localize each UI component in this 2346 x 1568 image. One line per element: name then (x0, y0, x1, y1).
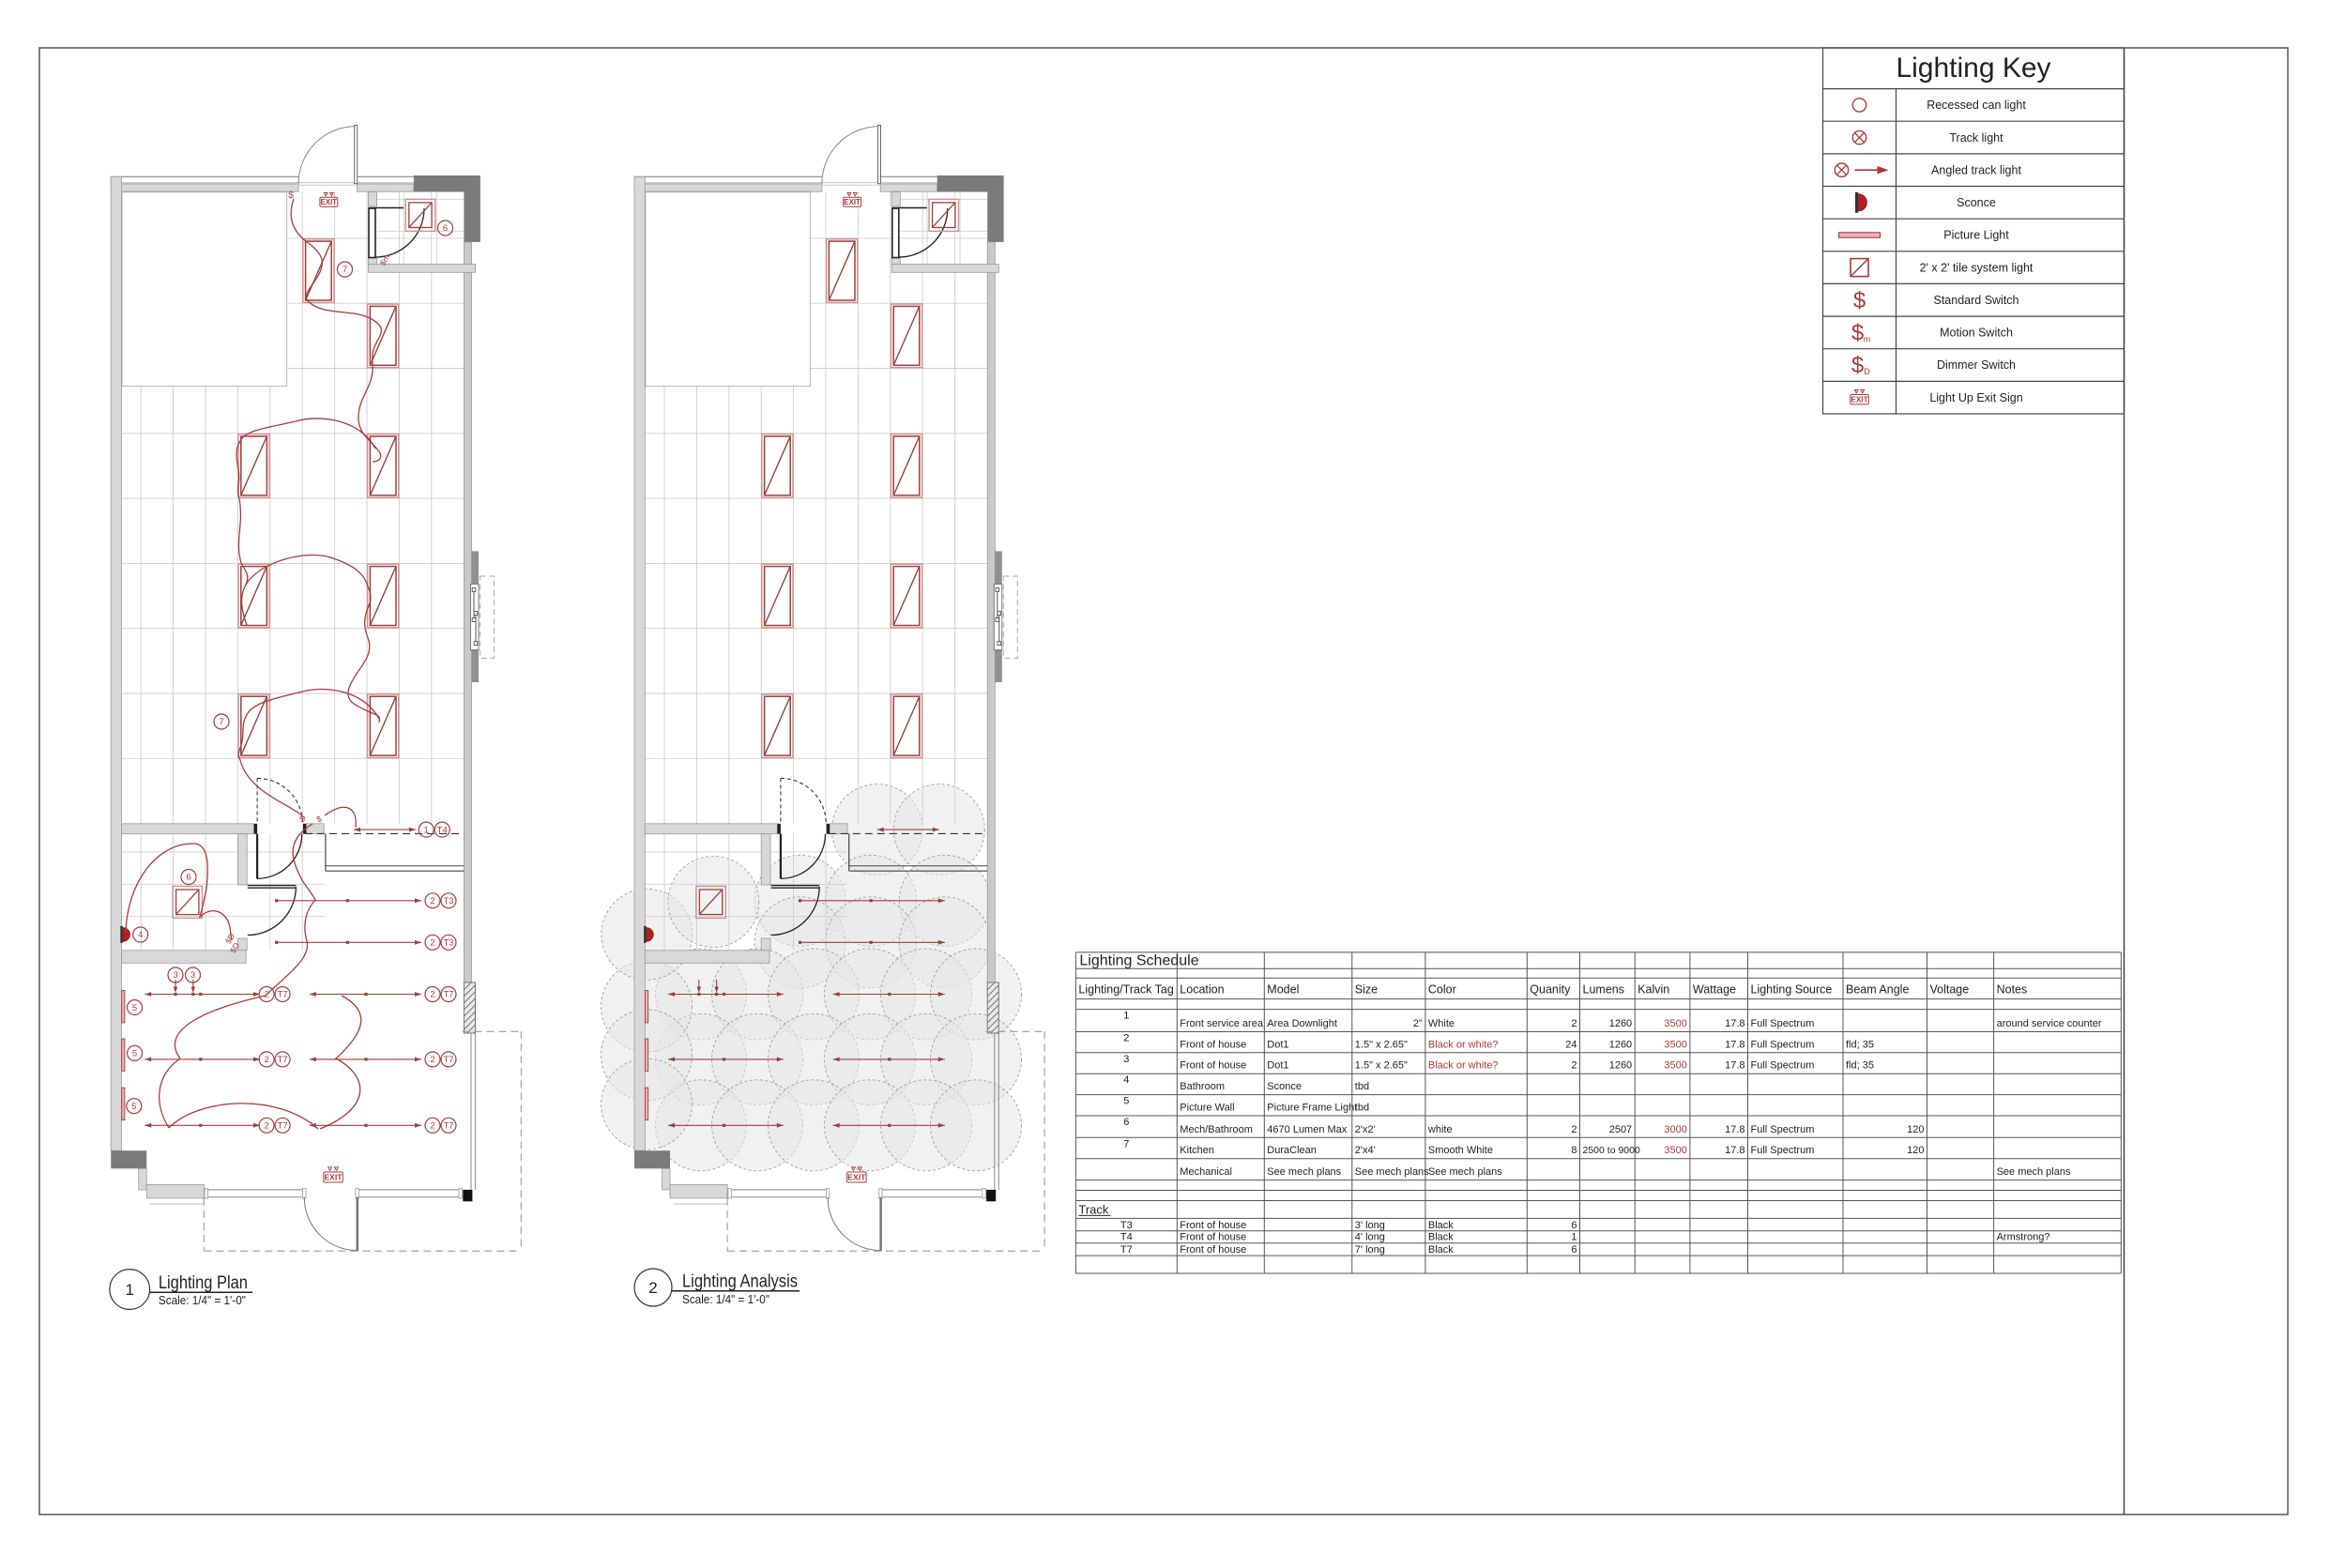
svg-text:m: m (1864, 334, 1871, 343)
svg-text:Size: Size (1355, 983, 1378, 997)
svg-text:T4: T4 (437, 825, 448, 835)
svg-text:3: 3 (173, 970, 177, 981)
svg-text:See mech plans: See mech plans (1267, 1166, 1341, 1178)
svg-text:7: 7 (343, 265, 347, 275)
svg-text:See mech plans: See mech plans (1355, 1166, 1429, 1178)
svg-text:Front of house: Front of house (1180, 1244, 1246, 1256)
svg-text:2: 2 (648, 1279, 657, 1297)
svg-text:1: 1 (1123, 1011, 1129, 1022)
svg-text:Beam Angle: Beam Angle (1846, 983, 1909, 997)
svg-text:Lumens: Lumens (1583, 983, 1624, 997)
svg-text:6: 6 (443, 223, 448, 234)
svg-text:Black or white?: Black or white? (1428, 1039, 1499, 1050)
svg-text:1.5" x 2.65": 1.5" x 2.65" (1355, 1039, 1408, 1050)
svg-text:120: 120 (1907, 1145, 1924, 1156)
svg-text:$: $ (1851, 320, 1864, 345)
svg-text:See mech plans: See mech plans (1428, 1166, 1502, 1178)
svg-text:white: white (1427, 1124, 1453, 1135)
svg-text:2: 2 (430, 938, 434, 949)
svg-text:2: 2 (430, 1055, 434, 1065)
svg-text:6: 6 (186, 873, 190, 883)
svg-text:Standard Switch: Standard Switch (1933, 294, 2018, 307)
svg-text:EXIT: EXIT (844, 198, 861, 206)
svg-text:1.5" x 2.65": 1.5" x 2.65" (1355, 1060, 1408, 1072)
svg-text:5: 5 (132, 1003, 137, 1013)
svg-text:Mech/Bathroom: Mech/Bathroom (1180, 1124, 1253, 1135)
svg-text:2: 2 (1571, 1060, 1577, 1072)
svg-text:tbd: tbd (1355, 1103, 1369, 1114)
svg-text:120: 120 (1907, 1124, 1924, 1135)
svg-text:Location: Location (1180, 983, 1224, 997)
svg-text:$: $ (288, 190, 294, 201)
svg-text:Smooth White: Smooth White (1428, 1145, 1493, 1156)
svg-text:Sconce: Sconce (1267, 1081, 1302, 1092)
svg-text:4' long: 4' long (1355, 1232, 1385, 1243)
svg-text:Quanity: Quanity (1530, 983, 1571, 997)
svg-text:T3: T3 (443, 896, 453, 906)
svg-text:Front of house: Front of house (1180, 1220, 1246, 1231)
svg-text:5: 5 (132, 1049, 137, 1059)
svg-text:3' long: 3' long (1355, 1220, 1385, 1231)
svg-text:fld; 35: fld; 35 (1846, 1039, 1874, 1050)
svg-text:fld; 35: fld; 35 (1846, 1060, 1874, 1072)
svg-text:Kalvin: Kalvin (1638, 983, 1669, 997)
svg-text:1: 1 (424, 825, 429, 835)
svg-text:3: 3 (190, 970, 195, 981)
svg-text:Full Spectrum: Full Spectrum (1751, 1060, 1815, 1072)
svg-text:Black or white?: Black or white? (1428, 1060, 1499, 1072)
svg-text:Track light: Track light (1949, 131, 2003, 145)
svg-text:2: 2 (430, 1121, 434, 1132)
svg-text:7' long: 7' long (1355, 1244, 1385, 1256)
svg-text:T7: T7 (278, 990, 288, 1000)
svg-text:T4: T4 (1120, 1232, 1133, 1243)
svg-text:2: 2 (1571, 1018, 1577, 1029)
svg-text:17.8: 17.8 (1725, 1018, 1744, 1029)
svg-text:T7: T7 (443, 990, 453, 1000)
svg-text:7: 7 (219, 717, 223, 727)
svg-text:Bathroom: Bathroom (1180, 1081, 1225, 1092)
svg-text:Angled track light: Angled track light (1931, 163, 2021, 176)
svg-text:around service counter: around service counter (1997, 1018, 2102, 1029)
svg-text:Lighting Schedule: Lighting Schedule (1079, 952, 1198, 968)
svg-text:17.8: 17.8 (1725, 1060, 1744, 1072)
svg-text:17.8: 17.8 (1725, 1124, 1744, 1135)
svg-text:Voltage: Voltage (1930, 983, 1970, 997)
svg-text:6: 6 (1571, 1244, 1577, 1256)
svg-text:7: 7 (1123, 1138, 1129, 1149)
svg-text:$: $ (1853, 288, 1866, 313)
svg-text:Dimmer Switch: Dimmer Switch (1937, 358, 2016, 372)
svg-text:Front of house: Front of house (1180, 1232, 1246, 1243)
svg-text:Wattage: Wattage (1693, 983, 1736, 997)
svg-text:3500: 3500 (1664, 1039, 1686, 1050)
svg-text:White: White (1428, 1018, 1455, 1029)
svg-text:Full Spectrum: Full Spectrum (1751, 1018, 1815, 1029)
svg-text:Full Spectrum: Full Spectrum (1751, 1145, 1815, 1156)
svg-text:17.8: 17.8 (1725, 1039, 1744, 1050)
svg-text:$: $ (1851, 353, 1864, 378)
svg-text:Track: Track (1078, 1202, 1109, 1216)
svg-text:T3: T3 (1120, 1220, 1133, 1231)
svg-text:Model: Model (1267, 983, 1299, 997)
svg-text:EXIT: EXIT (847, 1173, 866, 1182)
svg-text:Black: Black (1428, 1232, 1454, 1243)
svg-text:Lighting/Track Tag: Lighting/Track Tag (1078, 983, 1173, 997)
svg-text:Front service area: Front service area (1180, 1018, 1264, 1029)
svg-text:Picture Light: Picture Light (1943, 229, 2009, 242)
svg-text:Front of house: Front of house (1180, 1060, 1246, 1072)
svg-text:5: 5 (1123, 1096, 1129, 1107)
svg-text:DuraClean: DuraClean (1267, 1145, 1317, 1156)
svg-text:2507: 2507 (1609, 1124, 1632, 1135)
svg-text:1260: 1260 (1609, 1060, 1632, 1072)
svg-text:17.8: 17.8 (1725, 1145, 1744, 1156)
svg-text:EXIT: EXIT (1851, 396, 1867, 404)
svg-text:24: 24 (1565, 1039, 1577, 1050)
svg-text:Picture Wall: Picture Wall (1180, 1103, 1234, 1114)
svg-text:3500: 3500 (1664, 1018, 1686, 1029)
svg-text:T7: T7 (278, 1121, 288, 1132)
svg-text:Black: Black (1428, 1244, 1454, 1256)
svg-text:1260: 1260 (1609, 1039, 1632, 1050)
svg-text:2: 2 (1123, 1033, 1129, 1044)
svg-text:2: 2 (264, 1055, 268, 1065)
svg-text:Lighting Source: Lighting Source (1751, 983, 1833, 997)
svg-text:T7: T7 (278, 1055, 288, 1065)
svg-text:Dot1: Dot1 (1267, 1060, 1288, 1072)
svg-text:Light Up Exit Sign: Light Up Exit Sign (1929, 391, 2022, 404)
svg-text:Color: Color (1428, 983, 1456, 997)
svg-text:4: 4 (1123, 1074, 1129, 1086)
svg-text:Picture Frame Light: Picture Frame Light (1267, 1103, 1357, 1114)
svg-text:2: 2 (264, 990, 268, 1000)
svg-text:2: 2 (1571, 1124, 1577, 1135)
svg-text:Area Downlight: Area Downlight (1267, 1018, 1337, 1029)
svg-text:Scale: 1/4" = 1'-0": Scale: 1/4" = 1'-0" (682, 1292, 769, 1306)
svg-text:Full Spectrum: Full Spectrum (1751, 1039, 1815, 1050)
svg-text:Lighting Key: Lighting Key (1896, 53, 2050, 84)
svg-text:EXIT: EXIT (324, 1173, 343, 1182)
svg-text:Motion Switch: Motion Switch (1940, 327, 2013, 340)
svg-text:Sconce: Sconce (1957, 196, 1996, 209)
svg-text:Front of house: Front of house (1180, 1039, 1246, 1050)
svg-text:2: 2 (264, 1121, 268, 1132)
svg-text:D: D (1864, 367, 1870, 376)
svg-text:2' x 2' tile system light: 2' x 2' tile system light (1920, 261, 2034, 274)
svg-text:Notes: Notes (1997, 983, 2028, 997)
svg-text:5: 5 (131, 1102, 136, 1112)
svg-text:2500 to 9000: 2500 to 9000 (1583, 1145, 1640, 1156)
svg-text:8: 8 (1571, 1145, 1577, 1156)
svg-text:1260: 1260 (1609, 1018, 1632, 1029)
svg-text:T7: T7 (443, 1055, 453, 1065)
svg-text:T3: T3 (443, 938, 453, 949)
svg-text:3: 3 (1123, 1054, 1129, 1065)
svg-text:3500: 3500 (1664, 1060, 1686, 1072)
svg-text:4: 4 (138, 930, 143, 940)
svg-text:Recessed can light: Recessed can light (1927, 99, 2026, 112)
svg-text:tbd: tbd (1355, 1081, 1369, 1092)
svg-text:6: 6 (1123, 1117, 1129, 1128)
svg-text:Mechanical: Mechanical (1180, 1166, 1232, 1178)
svg-text:Lighting Plan: Lighting Plan (159, 1273, 248, 1293)
svg-text:Lighting Analysis: Lighting Analysis (682, 1272, 798, 1292)
svg-text:EXIT: EXIT (321, 198, 338, 206)
svg-text:6: 6 (1571, 1220, 1577, 1231)
svg-text:Scale: 1/4" = 1'-0": Scale: 1/4" = 1'-0" (159, 1293, 246, 1307)
svg-text:2'x4': 2'x4' (1355, 1145, 1376, 1156)
svg-text:2": 2" (1413, 1018, 1423, 1029)
svg-text:3000: 3000 (1664, 1124, 1686, 1135)
svg-text:2: 2 (430, 896, 434, 906)
svg-text:T7: T7 (1120, 1244, 1133, 1256)
svg-text:Black: Black (1428, 1220, 1454, 1231)
svg-text:2'x2': 2'x2' (1355, 1124, 1376, 1135)
svg-text:2: 2 (430, 990, 434, 1000)
svg-text:T7: T7 (443, 1121, 453, 1132)
svg-text:1: 1 (1571, 1232, 1577, 1243)
svg-text:4670 Lumen Max: 4670 Lumen Max (1267, 1124, 1347, 1135)
svg-text:Kitchen: Kitchen (1180, 1145, 1214, 1156)
svg-text:1: 1 (125, 1281, 133, 1299)
svg-text:Full Spectrum: Full Spectrum (1751, 1124, 1815, 1135)
svg-text:Armstrong?: Armstrong? (1997, 1232, 2050, 1243)
svg-text:3500: 3500 (1664, 1145, 1686, 1156)
svg-text:Dot1: Dot1 (1267, 1039, 1288, 1050)
svg-text:See mech plans: See mech plans (1997, 1166, 2071, 1178)
